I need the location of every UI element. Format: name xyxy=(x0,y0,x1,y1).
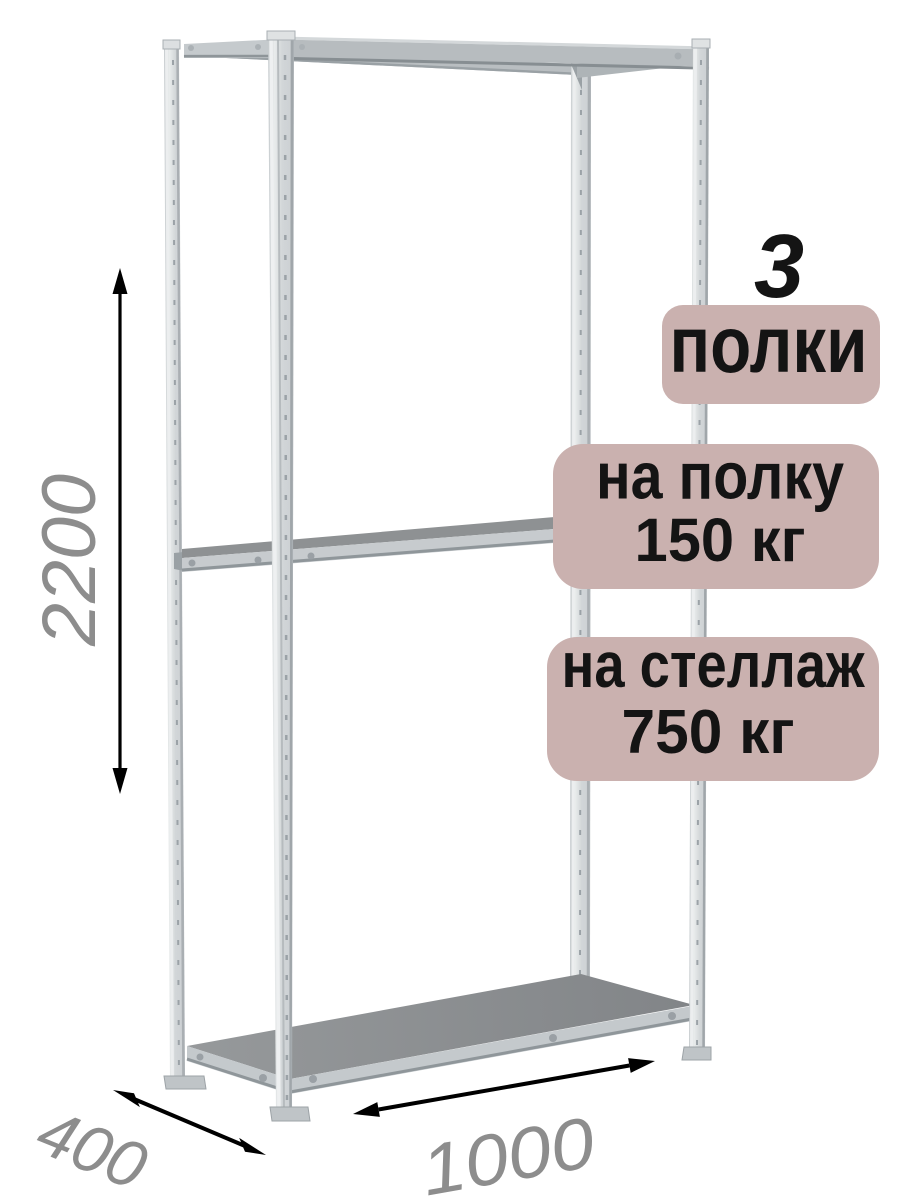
svg-text:полки: полки xyxy=(670,300,868,389)
svg-text:750 кг: 750 кг xyxy=(622,698,795,767)
svg-text:150 кг: 150 кг xyxy=(635,506,806,574)
svg-text:на стеллаж: на стеллаж xyxy=(562,629,866,701)
svg-text:2200: 2200 xyxy=(27,474,112,647)
svg-text:на полку: на полку xyxy=(596,439,844,513)
